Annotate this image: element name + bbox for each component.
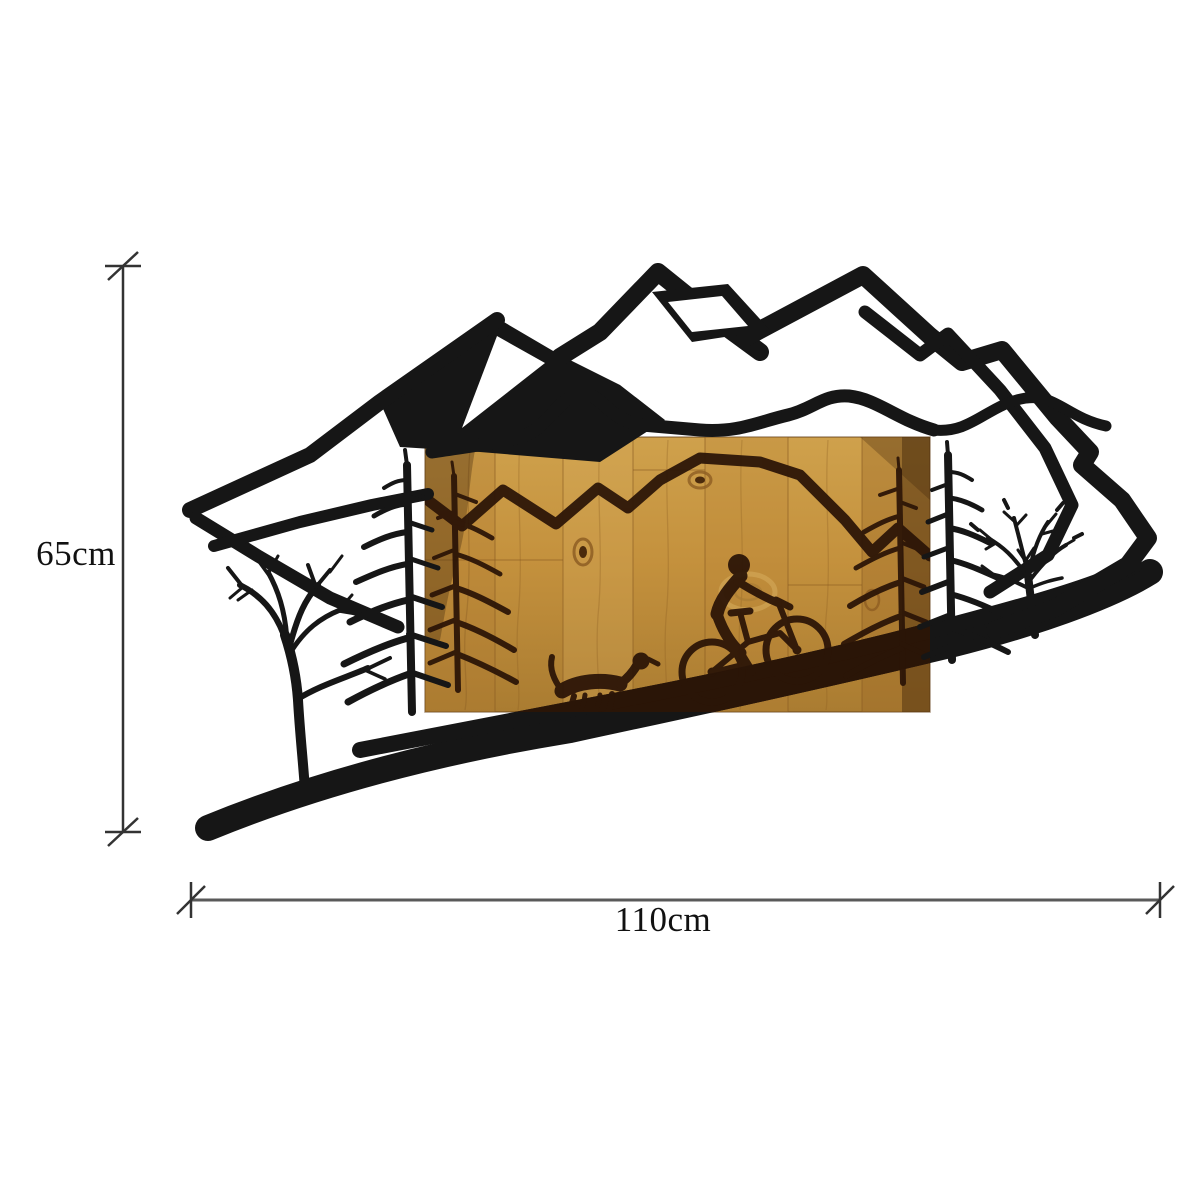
- product-image: [0, 0, 1200, 1200]
- product-dimension-diagram: 65cm 110cm: [0, 0, 1200, 1200]
- height-dimension-label: 65cm: [28, 534, 124, 574]
- width-dimension-label: 110cm: [598, 900, 728, 940]
